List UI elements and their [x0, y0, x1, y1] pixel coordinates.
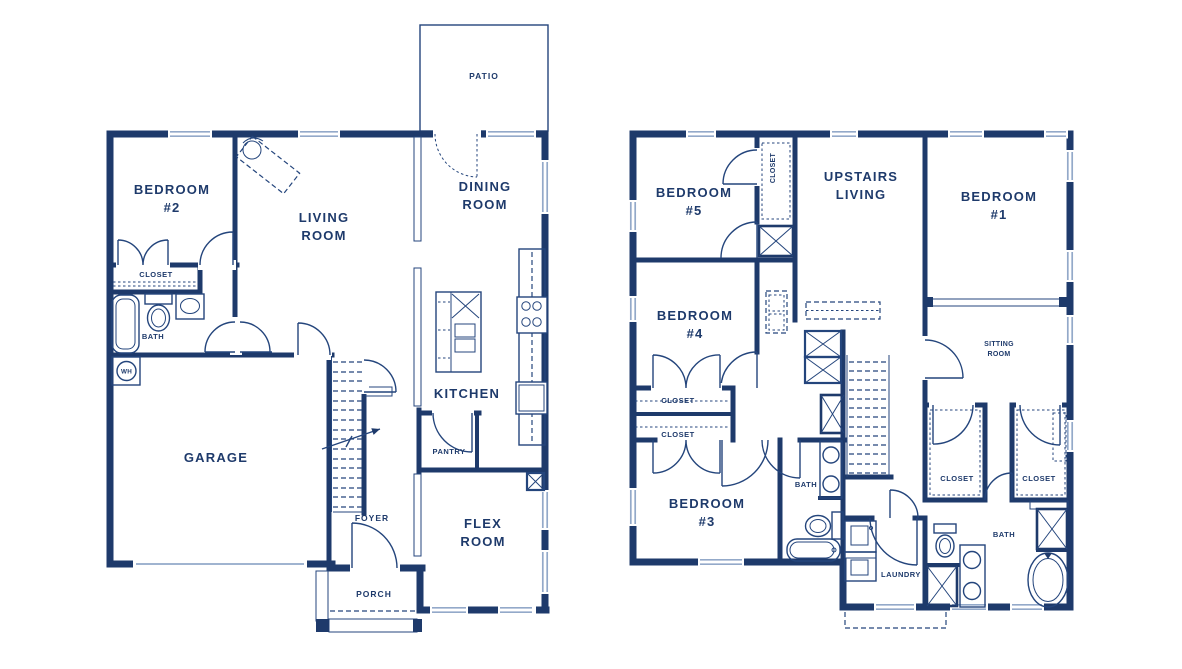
svg-text:#4: #4 [687, 326, 704, 341]
room-label-hall-closet-top: CLOSET [661, 396, 694, 405]
room-label-bedroom-5: BEDROOM [656, 185, 732, 200]
closet-shelf [113, 282, 197, 286]
room-label-bedroom-1: BEDROOM [961, 189, 1037, 204]
svg-text:ROOM: ROOM [460, 534, 505, 549]
cased-opening-kitchen [414, 268, 421, 406]
room-label-bath: BATH [142, 332, 164, 341]
first-floor-plan: WH [110, 25, 550, 632]
svg-text:ROOM: ROOM [301, 228, 346, 243]
door-arc [985, 473, 1012, 500]
window [629, 488, 638, 526]
front-door-arc [352, 523, 397, 568]
room-label-pantry: PANTRY [433, 447, 466, 456]
door-arc [722, 440, 768, 486]
bath2-fixtures [927, 410, 1068, 607]
toilet-icon [934, 524, 956, 533]
vanity [960, 545, 985, 607]
water-heater-icon: WH [112, 357, 140, 385]
room-label-laundry: LAUNDRY [881, 570, 921, 579]
dryer-icon [845, 552, 876, 581]
door-arc [933, 405, 973, 444]
toilet-icon [145, 294, 172, 304]
door-arc [240, 322, 272, 352]
room-label-flex-room: FLEX [464, 516, 502, 531]
porch-structure [316, 571, 422, 632]
sink-icon [823, 447, 839, 463]
window [1044, 130, 1068, 139]
window [874, 603, 916, 612]
sink-icon [823, 476, 839, 492]
room-label-foyer: FOYER [355, 513, 389, 523]
room-label-living-room: LIVING [299, 210, 350, 225]
cased-opening-foyer [414, 474, 421, 556]
window [830, 130, 858, 139]
sink-icon [964, 552, 981, 569]
window [1066, 420, 1075, 452]
window [1066, 315, 1075, 345]
floor-plan-page: WH [0, 0, 1182, 664]
kitchen-island [436, 292, 481, 372]
patio-door-arc [435, 134, 477, 177]
porch-edge [329, 619, 417, 632]
window [1066, 250, 1075, 282]
sink-icon [964, 583, 981, 600]
svg-text:WH: WH [121, 369, 132, 376]
room-label-sitting-room: SITTING [984, 341, 1014, 348]
half-wall-sitting-room [929, 299, 1061, 306]
faucet-icon [1044, 553, 1052, 559]
room-label-closet-a: CLOSET [940, 474, 973, 483]
window [629, 296, 638, 322]
window [168, 130, 212, 139]
optional-storage-outline [845, 612, 946, 628]
cased-opening-dining [414, 137, 421, 241]
svg-text:#5: #5 [686, 203, 703, 218]
room-labels: BEDROOM #5 CLOSET UPSTAIRS LIVING BEDROO… [656, 152, 1056, 579]
door-arc [890, 490, 918, 518]
window [486, 130, 536, 139]
room-label-patio: PATIO [469, 71, 499, 81]
window [541, 160, 550, 214]
room-label-dining-room: DINING [459, 179, 512, 194]
range-icon [517, 297, 547, 333]
window [541, 490, 550, 530]
french-door-arc [653, 440, 720, 473]
svg-text:ROOM: ROOM [988, 351, 1011, 358]
floor-plan-drawing: WH [0, 0, 1182, 664]
room-label-closet: CLOSET [139, 270, 172, 279]
svg-text:#2: #2 [164, 200, 181, 215]
porch-column [316, 571, 328, 621]
room-label-hall-closet-bottom: CLOSET [661, 430, 694, 439]
window [948, 130, 984, 139]
room-label-garage: GARAGE [184, 450, 248, 465]
room-label-closet-b: CLOSET [1022, 474, 1055, 483]
room-label-porch: PORCH [356, 589, 392, 599]
door-arc [723, 150, 757, 184]
door-arc [870, 518, 917, 565]
window [686, 130, 716, 139]
garden-tub-icon [1028, 553, 1068, 607]
room-label-bedroom-3: BEDROOM [669, 496, 745, 511]
svg-text:LIVING: LIVING [836, 187, 887, 202]
room-label-closet5: CLOSET [770, 152, 777, 183]
room-label-bedroom-2: BEDROOM [134, 182, 210, 197]
vanity [820, 441, 842, 498]
door-arc [925, 340, 963, 378]
door-arc [721, 222, 757, 258]
window [498, 606, 536, 615]
room-label-kitchen: KITCHEN [434, 386, 500, 401]
bath1-fixtures [787, 441, 843, 561]
window [430, 606, 468, 615]
room-label-upstairs-living: UPSTAIRS [824, 169, 898, 184]
window [698, 558, 744, 567]
room-label-bath1: BATH [795, 480, 817, 489]
svg-text:#1: #1 [991, 207, 1008, 222]
room-label-bedroom-4: BEDROOM [657, 308, 733, 323]
corner-fireplace-icon [236, 136, 299, 193]
island-sink-icon [452, 294, 479, 318]
window [298, 130, 340, 139]
door-arc [721, 352, 757, 388]
room-label-bath2: BATH [993, 530, 1015, 539]
stairs [847, 355, 889, 477]
second-floor-plan: BEDROOM #5 CLOSET UPSTAIRS LIVING BEDROO… [629, 130, 1075, 629]
window [1066, 150, 1075, 182]
svg-text:#3: #3 [699, 514, 716, 529]
window [629, 200, 638, 232]
refrigerator-icon [516, 382, 547, 414]
door-arc [1020, 405, 1060, 445]
svg-text:ROOM: ROOM [462, 197, 507, 212]
window [541, 550, 550, 594]
